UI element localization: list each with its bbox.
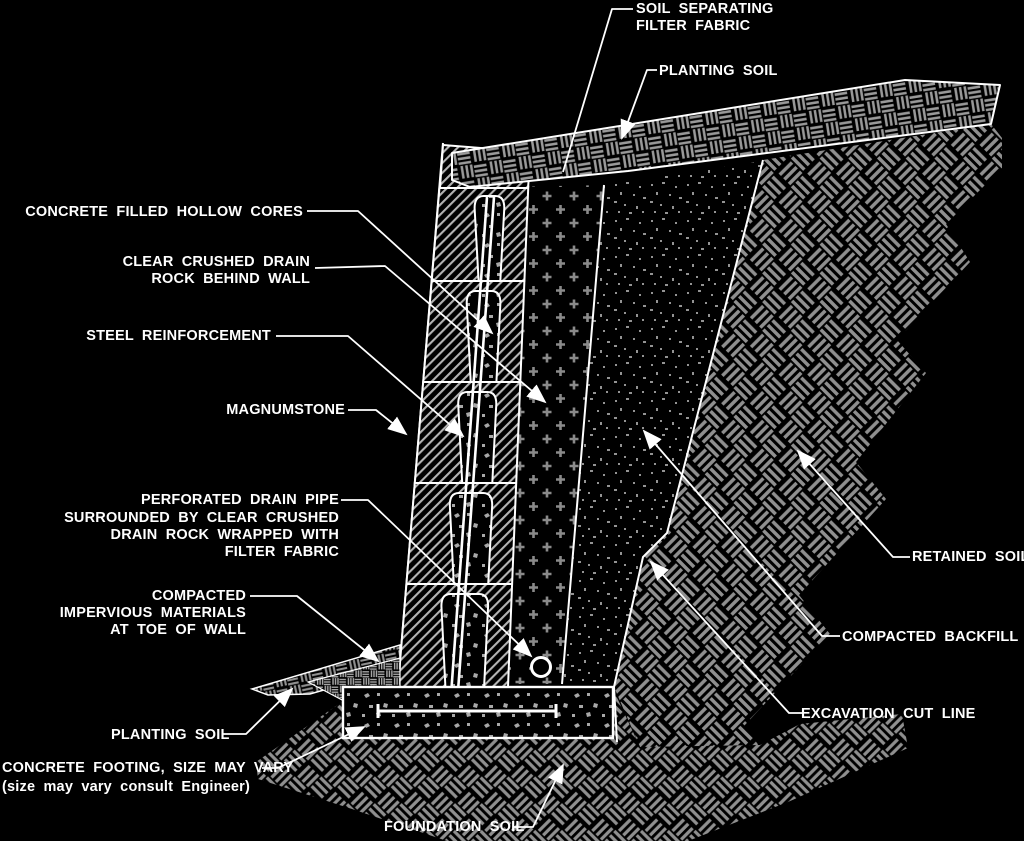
label-foundation-soil: FOUNDATION SOIL <box>384 819 524 836</box>
label-filter-fabric-1: SOIL SEPARATING <box>636 1 774 18</box>
label-excavation-cut-line: EXCAVATION CUT LINE <box>801 706 976 723</box>
label-planting-soil-bottom: PLANTING SOIL <box>111 727 230 744</box>
label-drain-rock-1: CLEAR CRUSHED DRAIN <box>123 254 310 271</box>
label-impervious-1: COMPACTED <box>152 588 246 605</box>
label-magnumstone: MAGNUMSTONE <box>226 402 345 419</box>
label-planting-soil-top: PLANTING SOIL <box>659 63 778 80</box>
label-hollow-cores: CONCRETE FILLED HOLLOW CORES <box>25 204 303 221</box>
label-compacted-backfill: COMPACTED BACKFILL <box>842 629 1018 646</box>
label-retained-soil: RETAINED SOIL <box>912 549 1024 566</box>
retaining-wall-detail-drawing: SOIL SEPARATING FILTER FABRIC PLANTING S… <box>0 0 1024 841</box>
label-drain-pipe-4: FILTER FABRIC <box>225 544 339 561</box>
label-drain-pipe-2: SURROUNDED BY CLEAR CRUSHED <box>64 510 339 527</box>
label-filter-fabric-2: FILTER FABRIC <box>636 18 750 35</box>
label-drain-pipe-3: DRAIN ROCK WRAPPED WITH <box>111 527 339 544</box>
label-footing-2: (size may vary consult Engineer) <box>2 779 250 796</box>
drain-pipe <box>532 658 551 677</box>
label-footing-1: CONCRETE FOOTING, SIZE MAY VARY <box>2 760 293 777</box>
label-impervious-3: AT TOE OF WALL <box>110 622 246 639</box>
label-impervious-2: IMPERVIOUS MATERIALS <box>60 605 246 622</box>
label-steel-reinforcement: STEEL REINFORCEMENT <box>86 328 271 345</box>
label-drain-pipe-1: PERFORATED DRAIN PIPE <box>141 492 339 509</box>
label-drain-rock-2: ROCK BEHIND WALL <box>151 271 310 288</box>
